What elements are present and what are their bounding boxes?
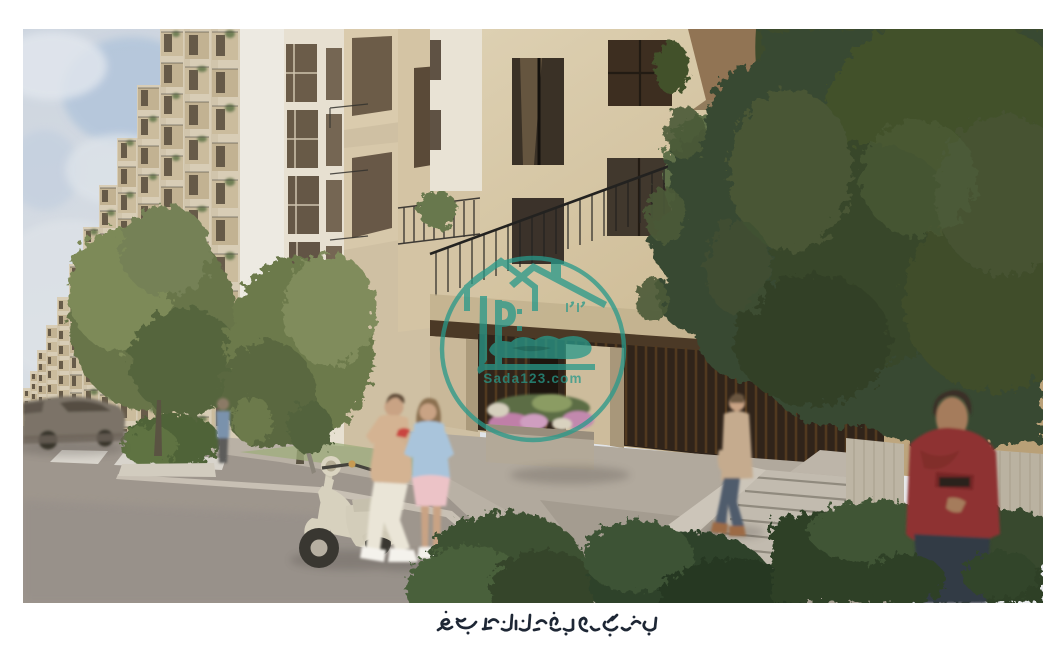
svg-text:Sada123.com: Sada123.com [483,371,583,386]
